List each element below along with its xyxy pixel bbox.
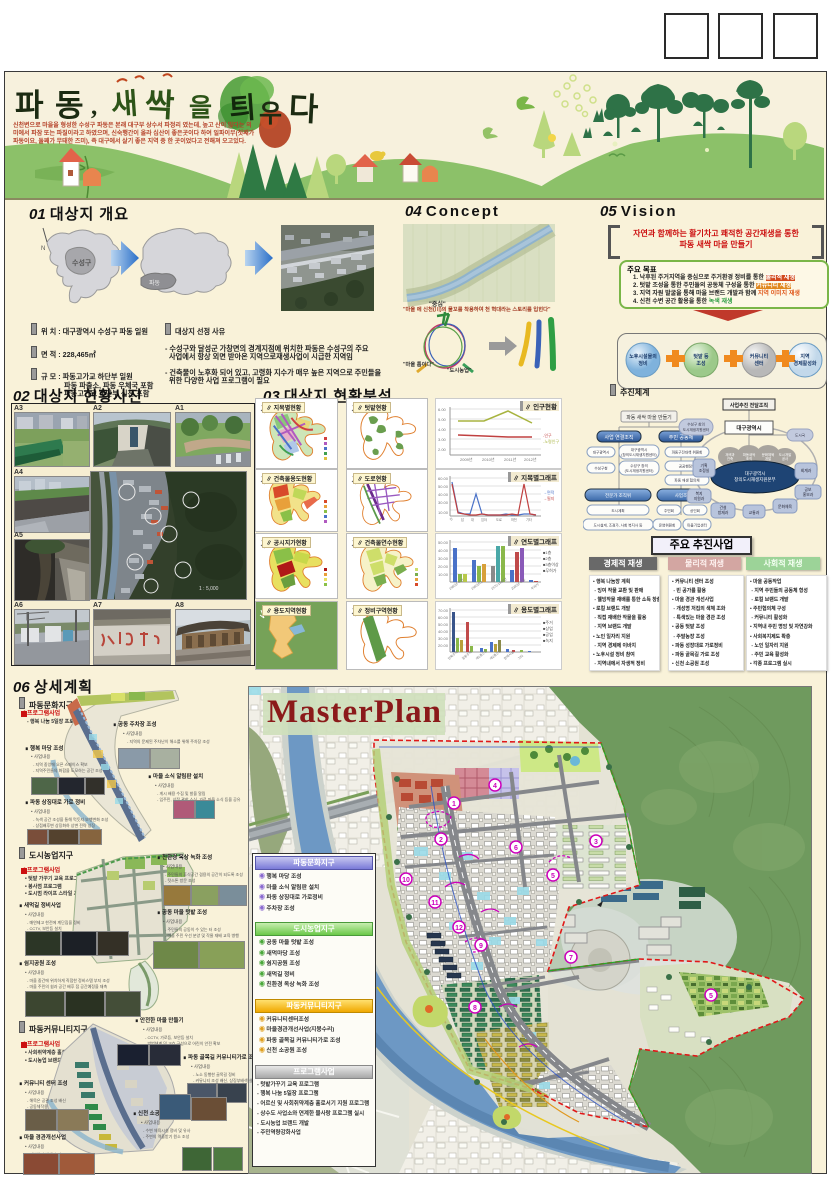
svg-text:5.00: 5.00 [438,417,447,422]
svg-text:틔: 틔 [228,91,257,126]
svg-text:전: 전 [448,516,454,522]
svg-text:수성구: 수성구 [72,258,92,267]
svg-text:2009년: 2009년 [460,456,473,462]
svg-text:50.00: 50.00 [438,484,449,489]
svg-text:파동: 파동 [149,279,161,287]
svg-text:-인구: -인구 [543,432,552,438]
svg-text:4.00: 4.00 [438,427,447,432]
svg-text:노후시설물의: 노후시설물의 [629,353,657,360]
svg-text:공사: 공사 [782,456,789,461]
svg-text:상인회: 상인회 [690,508,700,513]
svg-text:우: 우 [259,101,282,128]
svg-text:대: 대 [471,517,474,522]
svg-text:조직: 조직 [746,456,752,461]
svg-text:운영위원회: 운영위원회 [659,523,676,528]
svg-text:"마을 에 신천(川)의 물꼬를 착용하여 천 혁대라는 스: "마을 에 신천(川)의 물꼬를 착용하여 천 혁대라는 스토리를 입힌다" [403,305,551,313]
svg-text:다: 다 [288,90,320,128]
svg-text:50.00: 50.00 [438,622,449,627]
svg-text:마을기업센터: 마을기업센터 [687,523,707,528]
svg-text:2010년: 2010년 [482,456,495,462]
svg-text:3.00: 3.00 [438,437,447,442]
svg-text:개발: 개발 [765,456,771,461]
svg-text:20.00: 20.00 [438,564,449,569]
svg-text:■2층: ■2층 [543,555,552,561]
svg-text:■3층이상: ■3층이상 [543,561,559,567]
svg-text:창의도시재생지원본부: 창의도시재생지원본부 [734,476,775,483]
svg-text:■공업: ■공업 [543,631,553,637]
svg-text:교통과: 교통과 [749,510,760,515]
svg-text:복지: 복지 [696,491,703,496]
svg-text:수성구 창의: 수성구 창의 [687,422,705,427]
svg-text:사업 연결조직: 사업 연결조직 [605,434,634,441]
svg-text:50.00: 50.00 [438,540,449,545]
svg-text:4: 4 [493,783,497,790]
svg-text:30.00: 30.00 [438,500,449,505]
svg-text:대구광역시: 대구광역시 [593,450,610,455]
svg-text:주민회: 주민회 [664,508,674,513]
svg-text:6.00: 6.00 [438,407,447,412]
svg-text:수성구청: 수성구청 [594,466,607,471]
svg-text:"도시농업": "도시농업" [447,366,472,374]
svg-text:11: 11 [431,900,439,907]
svg-text:대구광역시: 대구광역시 [745,470,766,477]
svg-text:대구광역시: 대구광역시 [736,424,761,432]
svg-text:동: 동 [55,88,84,123]
svg-text:조정실: 조정실 [699,468,710,473]
svg-text:텃밭 등: 텃밭 등 [693,353,709,360]
svg-text:싹: 싹 [144,86,175,123]
svg-text:60.00: 60.00 [438,615,449,620]
svg-text:10.00: 10.00 [438,572,449,577]
svg-text:"중심": "중심" [429,300,446,308]
svg-text:대구광역시: 대구광역시 [631,447,648,452]
svg-text:경제활성화: 경제활성화 [793,360,816,367]
svg-text:7: 7 [569,955,573,962]
svg-text:도시설계, 조경가, 사회 복지사 등: 도시설계, 조경가, 사회 복지사 등 [594,523,644,528]
svg-text:-노령인구: -노령인구 [543,438,559,444]
svg-text:문화체육: 문화체육 [778,504,792,509]
svg-text:5: 5 [551,873,555,880]
svg-text:8: 8 [473,1005,477,1012]
svg-text:1 : 5,000: 1 : 5,000 [199,586,219,592]
svg-text:하천: 하천 [511,517,517,522]
svg-text:9: 9 [479,943,483,950]
svg-text:파동 새싹 마을 만들기: 파동 새싹 마을 만들기 [626,414,672,421]
svg-text:30.00: 30.00 [438,636,449,641]
svg-text:지원과: 지원과 [694,496,705,501]
svg-text:공보: 공보 [805,488,812,492]
svg-text:(도시재생지원센터): (도시재생지원센터) [625,468,654,473]
svg-text:6: 6 [514,845,518,852]
svg-text:■1층: ■1층 [543,549,552,555]
svg-text:2012년: 2012년 [524,456,537,462]
svg-text:건축: 건축 [727,456,733,461]
svg-text:70.00: 70.00 [438,608,449,613]
svg-text:도시국: 도시국 [795,433,806,438]
svg-text:3: 3 [594,839,598,846]
svg-text:1: 1 [452,801,456,808]
svg-text:도로: 도로 [496,518,502,522]
svg-text:지역: 지역 [800,353,810,360]
svg-text:"마을 틈이다": "마을 틈이다" [403,360,434,368]
svg-text:5: 5 [709,993,713,1000]
svg-text:20.00: 20.00 [438,643,449,648]
svg-text:파동구전대책 위원회: 파동구전대책 위원회 [672,450,703,455]
svg-text:임야: 임야 [481,517,487,522]
svg-text:10.00: 10.00 [438,510,449,515]
svg-text:■무허가: ■무허가 [543,567,557,573]
svg-text:커뮤니티: 커뮤니티 [750,353,769,360]
svg-text:답: 답 [461,517,464,522]
svg-text:,: , [91,93,97,120]
svg-text:10: 10 [402,877,410,884]
svg-text:2: 2 [439,837,443,844]
svg-text:기타: 기타 [526,517,532,522]
svg-text:회계과: 회계과 [801,468,812,473]
svg-text:사업추진 전달조직: 사업추진 전달조직 [730,402,769,409]
svg-text:전문가 조직위: 전문가 조직위 [605,492,631,499]
svg-text:수성구 창의: 수성구 창의 [630,463,648,468]
svg-text:을: 을 [189,95,212,122]
svg-text:12: 12 [455,925,463,932]
svg-text:방재과: 방재과 [718,510,729,515]
svg-text:N: N [41,246,45,252]
svg-text:■녹지: ■녹지 [543,637,553,643]
svg-text:도시재생지원센터: 도시재생지원센터 [683,427,709,432]
svg-text:→필지: →필지 [543,495,555,501]
svg-text:센터: 센터 [754,360,764,367]
svg-text:60.00: 60.00 [438,476,449,481]
svg-text:30.00: 30.00 [438,556,449,561]
svg-text:파: 파 [15,88,44,123]
svg-text:건설: 건설 [720,505,727,510]
svg-text:조성: 조성 [696,360,706,367]
svg-text:2011년: 2011년 [504,456,517,462]
svg-text:도시계획: 도시계획 [611,508,624,513]
svg-text:40.00: 40.00 [438,629,449,634]
svg-text:■상업: ■상업 [543,625,553,631]
svg-text:기획: 기획 [701,463,708,468]
svg-text:새: 새 [110,87,139,122]
svg-text:(창의도시재생지원센터): (창의도시재생지원센터) [621,452,656,457]
svg-text:→면적: →면적 [543,489,555,495]
svg-text:40.00: 40.00 [438,548,449,553]
svg-text:파동 재생 협의체: 파동 재생 협의체 [674,478,699,483]
svg-text:40.00: 40.00 [438,492,449,497]
svg-text:■주거: ■주거 [543,619,553,625]
svg-text:무허가: 무허가 [530,582,540,591]
svg-text:2.00: 2.00 [438,447,447,452]
svg-text:홍보과: 홍보과 [803,492,814,497]
svg-text:1960년대: 1960년대 [470,579,484,591]
svg-text:기타: 기타 [516,653,524,661]
svg-text:정비: 정비 [638,360,648,367]
